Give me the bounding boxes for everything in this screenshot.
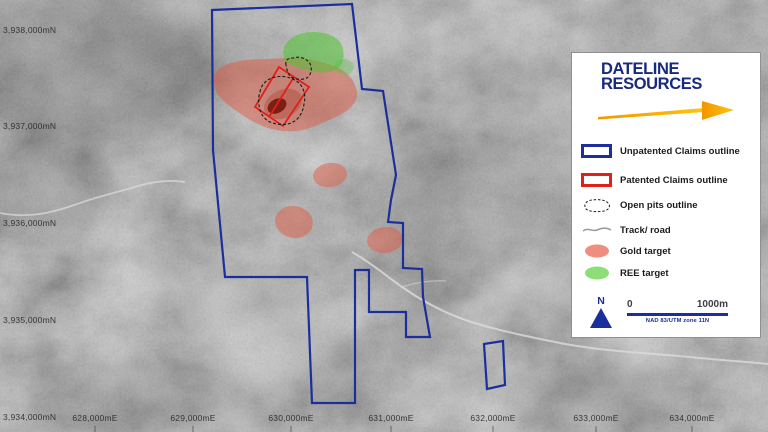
northing-label: 3,935,000mN [3,315,56,325]
northing-label: 3,934,000mN [3,412,56,422]
north-indicator: N [586,295,616,334]
legend-item-label: Gold target [620,246,671,257]
logo-arrow-icon [596,99,741,127]
datum-label: NAD 83/UTM zone 11N [627,318,728,324]
legend-item-gold: Gold target [581,243,756,259]
scale-line [627,313,728,316]
ree-target-swatch-icon [581,266,612,280]
north-label: N [586,295,616,307]
easting-label: 633,000mE [573,413,618,423]
easting-label: 630,000mE [268,413,313,423]
map-figure: 3,938,000mN 3,937,000mN 3,936,000mN 3,93… [0,0,768,432]
north-arrow-icon [586,307,616,329]
legend-item-label: Open pits outline [620,200,698,211]
northing-label: 3,937,000mN [3,121,56,131]
legend-item-patented: Patented Claims outline [581,172,756,188]
legend-item-label: Patented Claims outline [620,175,728,186]
easting-label: 628,000mE [72,413,117,423]
unpatented-claims-swatch-icon [581,144,612,158]
company-logo: DATELINE RESOURCES [601,62,702,92]
open-pits-swatch-icon [581,198,612,212]
legend-item-ree: REE target [581,265,756,281]
legend-panel: DATELINE RESOURCES Unpatented Claims out… [571,52,761,338]
legend-item-open-pits: Open pits outline [581,197,756,213]
logo-line2: RESOURCES [601,77,702,92]
patented-claims-swatch-icon [581,173,612,187]
ree-target-halo [334,59,354,75]
easting-label: 631,000mE [368,413,413,423]
easting-label: 634,000mE [669,413,714,423]
legend-item-unpatented: Unpatented Claims outline [581,143,756,159]
legend-item-label: Track/ road [620,225,671,236]
legend-item-track: Track/ road [581,222,756,238]
northing-label: 3,936,000mN [3,218,56,228]
scale-bar: 0 1000m NAD 83/UTM zone 11N [627,299,728,324]
scale-start-label: 0 [627,299,633,311]
northing-label: 3,938,000mN [3,25,56,35]
legend-item-label: REE target [620,268,669,279]
scale-end-label: 1000m [697,299,728,311]
gold-target-swatch-icon [581,244,612,258]
easting-label: 632,000mE [470,413,515,423]
legend-item-label: Unpatented Claims outline [620,146,740,157]
easting-label: 629,000mE [170,413,215,423]
track-road-swatch-icon [581,223,612,237]
